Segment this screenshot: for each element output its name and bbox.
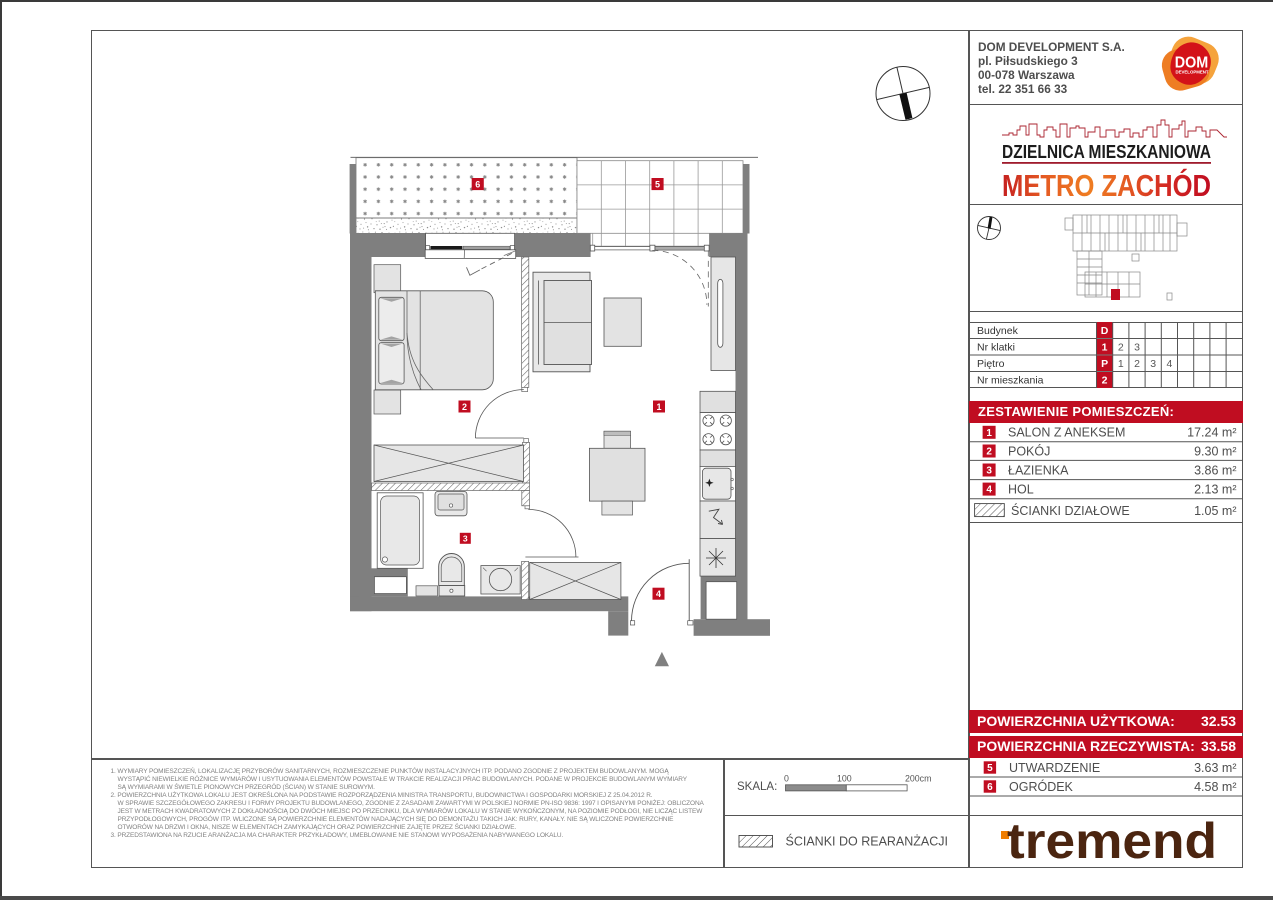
svg-text:D: D bbox=[1101, 325, 1109, 337]
svg-text:9.30 m²: 9.30 m² bbox=[1194, 444, 1236, 458]
svg-text:1: 1 bbox=[1102, 342, 1108, 354]
svg-text:DZIELNICA MIESZKANIOWA: DZIELNICA MIESZKANIOWA bbox=[1002, 142, 1211, 162]
svg-text:Nr mieszkania: Nr mieszkania bbox=[977, 375, 1044, 387]
svg-text:1: 1 bbox=[656, 402, 661, 412]
svg-text:ŚCIANKI DO REARANŻACJI: ŚCIANKI DO REARANŻACJI bbox=[786, 834, 949, 849]
svg-text:3: 3 bbox=[463, 534, 468, 544]
svg-text:6: 6 bbox=[987, 782, 993, 793]
svg-text:SALON Z ANEKSEM: SALON Z ANEKSEM bbox=[1008, 426, 1125, 440]
svg-text:METRO ZACHÓD: METRO ZACHÓD bbox=[1002, 167, 1211, 203]
svg-text:4: 4 bbox=[1166, 358, 1172, 370]
svg-text:Nr klatki: Nr klatki bbox=[977, 342, 1015, 354]
svg-text:3.63 m²: 3.63 m² bbox=[1194, 761, 1236, 775]
svg-text:1.05 m²: 1.05 m² bbox=[1194, 504, 1236, 518]
svg-text:POKÓJ: POKÓJ bbox=[1008, 443, 1050, 458]
svg-text:2: 2 bbox=[462, 402, 467, 412]
svg-text:UTWARDZENIE: UTWARDZENIE bbox=[1009, 761, 1100, 775]
svg-text:100: 100 bbox=[837, 774, 852, 784]
svg-text:DEVELOPMENT: DEVELOPMENT bbox=[1176, 70, 1209, 75]
svg-text:Piętro: Piętro bbox=[977, 358, 1005, 370]
svg-text:Budynek: Budynek bbox=[977, 325, 1019, 337]
svg-text:3.86 m²: 3.86 m² bbox=[1194, 463, 1236, 477]
svg-text:4: 4 bbox=[986, 485, 992, 496]
svg-text:1: 1 bbox=[1118, 358, 1124, 370]
svg-text:3: 3 bbox=[1134, 342, 1140, 354]
svg-text:2: 2 bbox=[1134, 358, 1140, 370]
svg-text:P: P bbox=[1101, 358, 1108, 370]
svg-text:6: 6 bbox=[475, 179, 480, 189]
svg-text:2: 2 bbox=[1102, 375, 1108, 387]
svg-text:4: 4 bbox=[656, 589, 661, 599]
svg-text:OGRÓDEK: OGRÓDEK bbox=[1009, 779, 1074, 794]
svg-text:5: 5 bbox=[655, 179, 660, 189]
svg-text:ŁAZIENKA: ŁAZIENKA bbox=[1008, 463, 1069, 477]
svg-text:2.13 m²: 2.13 m² bbox=[1194, 483, 1236, 497]
svg-text:4.58 m²: 4.58 m² bbox=[1194, 780, 1236, 794]
svg-text:2: 2 bbox=[986, 447, 992, 458]
svg-text:ŚCIANKI DZIAŁOWE: ŚCIANKI DZIAŁOWE bbox=[1011, 503, 1130, 518]
svg-text:3: 3 bbox=[1150, 358, 1156, 370]
svg-text:5: 5 bbox=[987, 763, 993, 774]
svg-text:0: 0 bbox=[784, 774, 789, 784]
svg-text:200cm: 200cm bbox=[905, 774, 931, 784]
svg-text:1: 1 bbox=[986, 428, 992, 439]
svg-text:HOL: HOL bbox=[1008, 483, 1034, 497]
svg-text:2: 2 bbox=[1118, 342, 1124, 354]
svg-text:17.24 m²: 17.24 m² bbox=[1187, 426, 1236, 440]
svg-text:3: 3 bbox=[986, 466, 992, 477]
